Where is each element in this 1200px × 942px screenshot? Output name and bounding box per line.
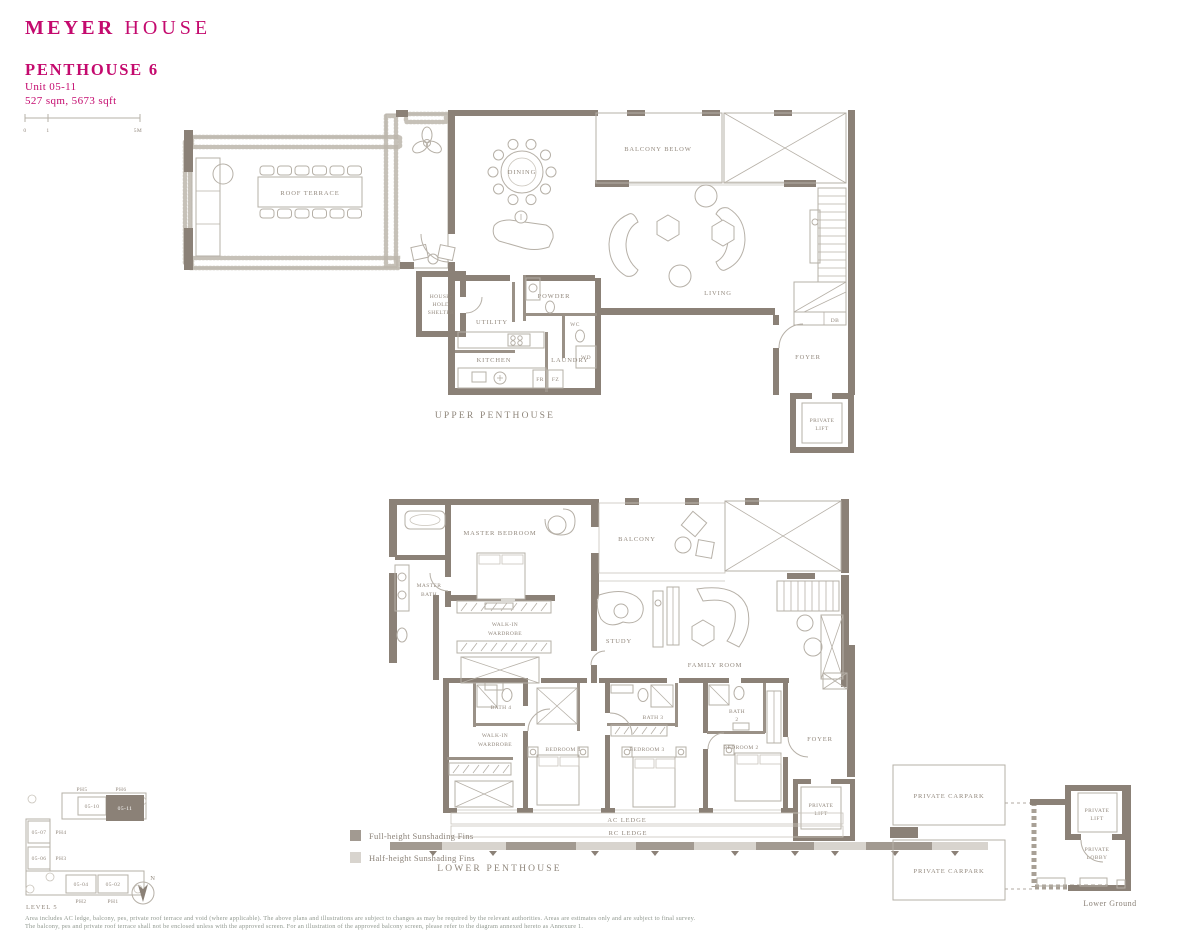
room-label-balcony-below: BALCONY BELOW [624, 146, 692, 153]
room-label-roof-terrace: ROOF TERRACE [280, 190, 339, 197]
toilet [397, 628, 407, 642]
room-label-study: STUDY [606, 638, 632, 645]
label-lower-ground: Lower Ground [1083, 899, 1136, 908]
key-label-u04: 05-04 [74, 882, 89, 888]
lower-floor-plan: MASTER BATH MASTER BEDROOM WALK-IN WARDR… [385, 495, 865, 855]
label-fr: FR [536, 377, 544, 383]
desk-chair [614, 604, 628, 618]
brand-logo-light: HOUSE [124, 17, 211, 39]
family-table-hex [692, 620, 714, 646]
footnotes: Area includes AC ledge, balcony, pes, pr… [25, 915, 1100, 930]
unit-number: Unit 05-11 [25, 81, 77, 93]
dining-room: DINING [421, 139, 556, 262]
floor-label-upper: UPPER PENTHOUSE [435, 411, 555, 421]
room-label-bath2-2: 2 [735, 717, 738, 723]
room-label-bedroom2: BEDROOM 2 [723, 745, 758, 751]
site-key-plan: PH5 PH6 05-10 05-11 05-07 PH4 05-06 PH3 … [20, 781, 195, 913]
key-label-ph5: PH5 [77, 787, 88, 793]
lounge-chair [548, 516, 566, 534]
legend-label-full: Full-height Sunshading Fins [369, 831, 473, 841]
brand-logo: MEYERHOUSE [25, 17, 211, 40]
legend-swatch-dark [350, 830, 361, 841]
terrace-umbrella [411, 127, 444, 155]
key-label-u10: 05-10 [85, 804, 100, 810]
study: STUDY [591, 587, 679, 665]
key-label-ph2: PH2 [76, 899, 87, 905]
label-lobby-1: PRIVATE [1085, 847, 1110, 853]
key-label-ph3: PH3 [56, 856, 67, 862]
room-label-walkin-1: WALK-IN [492, 622, 518, 628]
door-arc [466, 297, 482, 313]
tv-console [653, 591, 663, 647]
room-label-bedroom4: BEDROOM 4 [545, 747, 580, 753]
room-label-lift-lower-2: LIFT [814, 811, 827, 817]
label-carpark-1: PRIVATE CARPARK [913, 793, 984, 800]
coffee-table-hex [657, 215, 679, 241]
bathtub [405, 511, 445, 529]
bedroom3: BEDROOM 3 [610, 713, 686, 807]
room-label-household-1: HOUSE- [430, 294, 453, 300]
toilet [546, 301, 555, 313]
room-label-lift-lower-1: PRIVATE [809, 803, 834, 809]
room-label-foyer-upper: FOYER [795, 354, 821, 361]
room-label-balcony: BALCONY [618, 536, 656, 543]
room-label-foyer-lower: FOYER [807, 736, 833, 743]
room-label-kitchen: KITCHEN [477, 357, 512, 364]
room-label-bath2-1: BATH [729, 709, 745, 715]
room-label-living: LIVING [704, 290, 732, 297]
door-arc [591, 651, 605, 665]
lift-lobby: PRIVATE LIFT PRIVATE LOBBY [1030, 785, 1131, 891]
footnote-line-2: The balcony, pes and private roof terrac… [25, 923, 1100, 931]
ledges: AC LEDGE RC LEDGE [451, 813, 843, 837]
door-arc [788, 737, 808, 757]
room-label-family-room: FAMILY ROOM [688, 662, 743, 669]
label-rc-ledge: RC LEDGE [609, 830, 648, 837]
armchair [797, 615, 813, 631]
key-label-ph6: PH6 [116, 787, 127, 793]
room-label-household-2: HOLD [433, 302, 450, 308]
room-label-powder: POWDER [538, 293, 571, 300]
door-arc [779, 324, 803, 348]
kitchen-laundry: KITCHEN LAUNDRY FR FZ [458, 332, 589, 388]
room-label-laundry: LAUNDRY [551, 357, 589, 364]
upper-walls [416, 110, 855, 453]
pouf [669, 265, 691, 287]
master-bed [477, 553, 525, 599]
room-label-lift-upper-1: PRIVATE [810, 418, 835, 424]
legend-swatch-light [350, 852, 361, 863]
bath2: BATH 2 [709, 685, 781, 743]
key-plan-level: LEVEL 5 [26, 904, 58, 911]
room-label-master-bedroom: MASTER BEDROOM [463, 530, 536, 537]
sofa-left [609, 214, 638, 277]
brand-logo-bold: MEYER [25, 17, 115, 39]
door-arc [708, 733, 724, 749]
room-label-bath3: BATH 3 [643, 715, 664, 721]
bed-bench [485, 603, 513, 609]
roof-terrace: ROOF TERRACE [184, 110, 455, 270]
armchair [804, 638, 822, 656]
legend-full-height: Full-height Sunshading Fins [350, 830, 473, 841]
page-title: PENTHOUSE 6 [25, 60, 159, 80]
scale-1: 1 [46, 128, 49, 134]
legend-half-height: Half-height Sunshading Fins [350, 852, 475, 863]
scale-5m: 5M [134, 128, 142, 134]
living-room: LIVING [609, 182, 820, 297]
floorplan-page: MEYERHOUSE PENTHOUSE 6 Unit 05-11 527 sq… [0, 0, 1200, 942]
room-label-wc: WC [570, 322, 580, 328]
unit-area: 527 sqm, 5673 sqft [25, 95, 117, 107]
wardrobe2: WALK-IN WARDROBE [449, 733, 513, 807]
key-label-ph4: PH4 [56, 830, 67, 836]
room-label-lift-upper-2: LIFT [815, 426, 828, 432]
family-room: FAMILY ROOM [653, 588, 822, 669]
balcony-below: BALCONY BELOW [596, 113, 722, 183]
fin-arrows [429, 851, 959, 856]
legend-label-half: Half-height Sunshading Fins [369, 853, 475, 863]
balcony-lower: BALCONY [599, 503, 725, 581]
vanity [395, 565, 409, 611]
label-fz: FZ [552, 377, 559, 383]
upper-floor-plan: ROOF TERRACE [182, 110, 892, 455]
room-label-master-bath-2: BATH [421, 592, 437, 598]
lower-walls [389, 498, 855, 841]
scale-0: 0 [23, 128, 26, 134]
key-label-ph1: PH1 [108, 899, 119, 905]
grand-piano [493, 211, 553, 250]
toilet [734, 687, 744, 700]
compass-north: N [150, 875, 156, 882]
key-label-u02: 05-02 [106, 882, 121, 888]
room-label-walkin-2: WARDROBE [488, 631, 522, 637]
master-wardrobe: WALK-IN WARDROBE [457, 601, 551, 683]
room-label-utility: UTILITY [476, 319, 508, 326]
room-label-dining: DINING [508, 169, 537, 176]
label-ac-ledge: AC LEDGE [607, 817, 646, 824]
room-label-bedroom3: BEDROOM 3 [629, 747, 664, 753]
void-cross-lower [725, 501, 841, 571]
room-label-bath4: BATH 4 [491, 705, 512, 711]
master-suite: MASTER BATH MASTER BEDROOM [395, 509, 575, 642]
label-carpark-2: PRIVATE CARPARK [913, 868, 984, 875]
key-label-u07: 05-07 [32, 830, 47, 836]
room-label-walkin2-1: WALK-IN [482, 733, 508, 739]
balcony-chair [696, 540, 715, 559]
kitchen-island [458, 332, 544, 348]
label-basement-lift-1: PRIVATE [1085, 808, 1110, 814]
void-cross-upper [724, 113, 846, 183]
key-label-u11: 05-11 [118, 806, 133, 812]
label-basement-lift-2: LIFT [1090, 816, 1103, 822]
bath3: BATH 3 [611, 685, 673, 736]
stairs-lower [777, 581, 843, 679]
door-arc [528, 709, 550, 731]
label-db: DB [831, 318, 839, 324]
footnote-line-1: Area includes AC ledge, balcony, pes, pr… [25, 915, 1100, 923]
room-label-household-3: SHELTER [428, 310, 454, 316]
pouf [695, 185, 717, 207]
floor-label-lower: LOWER PENTHOUSE [417, 864, 582, 874]
scale-bar: 0 1 5M [22, 112, 157, 140]
basement-plan: PRIVATE CARPARK PRIVATE CARPARK PRIVATE … [885, 758, 1200, 914]
toilet [576, 330, 585, 342]
toilet [638, 689, 648, 702]
balcony-chair [681, 511, 706, 536]
key-label-u06: 05-06 [32, 856, 47, 862]
balcony-table [675, 537, 691, 553]
room-label-walkin2-2: WARDROBE [478, 742, 512, 748]
foyer-lift-upper: FOYER PRIVATE LIFT [779, 324, 842, 443]
